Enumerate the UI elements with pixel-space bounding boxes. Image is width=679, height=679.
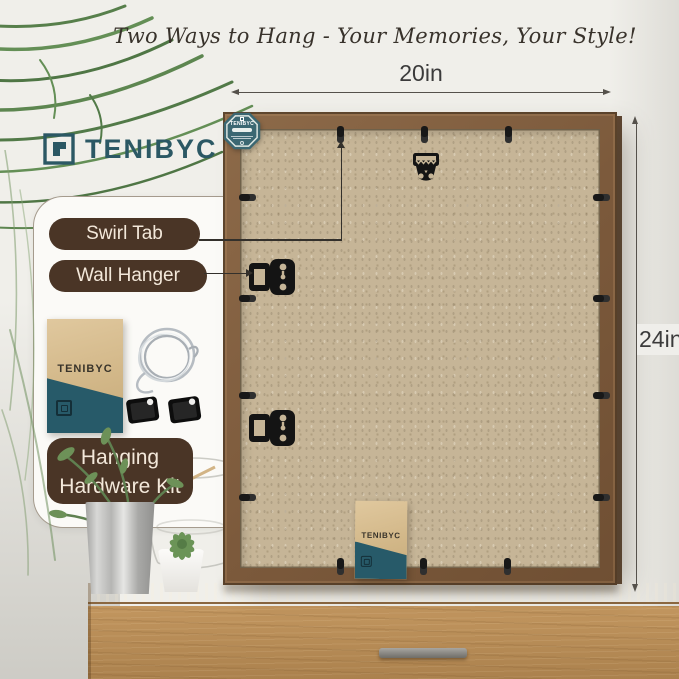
height-dimension-label: 24in (637, 324, 679, 355)
height-dimension-arrow-top (632, 116, 638, 124)
swirl-tab-icon (593, 494, 610, 501)
swirl-tab-callout-line-h (199, 239, 342, 241)
badge-microtext (233, 138, 251, 139)
frame-envelope-logo-icon (361, 555, 372, 566)
product-diagram: TENIBYC Two Ways to Hang - Your Memories… (0, 0, 679, 679)
swirl-tab-icon (421, 126, 428, 143)
octagon-badge: TENIBYC (223, 112, 261, 150)
frame-envelope: TENIBYC (355, 501, 408, 579)
wall-hanger-label-text: Wall Hanger (76, 265, 180, 287)
badge-brand-text: TENIBYC (223, 121, 261, 127)
picture-frame-back: TENIBYC TENIBYC (223, 112, 617, 585)
swirl-tab-label-text: Swirl Tab (86, 223, 163, 245)
succulent-icon (154, 522, 210, 560)
frame-backboard (240, 129, 600, 568)
wall-hanger-icon (248, 257, 296, 297)
brand-logo: TENIBYC (42, 130, 242, 168)
width-dimension-arrow-right (603, 89, 611, 95)
wall-hanger-callout-arrow (246, 269, 253, 277)
bucket-rim (82, 498, 158, 508)
swirl-tab-icon (239, 194, 256, 201)
swirl-tab-callout-arrow (337, 141, 345, 148)
width-dimension-arrow-left (231, 89, 239, 95)
page-title: Two Ways to Hang - Your Memories, Your S… (100, 24, 650, 48)
swirl-tab-icon (593, 295, 610, 302)
swirl-tab-icon (593, 194, 610, 201)
badge-bar (232, 128, 252, 132)
dresser-front (88, 606, 679, 679)
drawer-handle (379, 648, 467, 658)
width-dimension-line (237, 92, 606, 93)
hanger-pack-icons (125, 393, 207, 427)
frame-side-depth (617, 116, 622, 584)
wall-hanger-icon (248, 408, 296, 448)
dresser-left-edge (88, 583, 91, 679)
width-dimension-label: 20in (371, 60, 471, 87)
swirl-tab-icon (593, 392, 610, 399)
metal-bucket (84, 502, 156, 594)
badge-seal-icon (240, 141, 244, 145)
wall-hanger-callout-line (204, 273, 247, 275)
swirl-tab-icon (239, 392, 256, 399)
swirl-tab-icon (505, 126, 512, 143)
badge-microtext (231, 136, 253, 137)
swirl-tab-icon (239, 494, 256, 501)
swirl-tab-label: Swirl Tab (49, 218, 200, 250)
sawtooth-hanger-icon (412, 152, 440, 184)
swirl-tab-callout-line-v (341, 147, 343, 240)
swirl-tab-icon (504, 558, 511, 575)
dresser (88, 583, 679, 679)
swirl-tab-icon (420, 558, 427, 575)
frame-envelope-teal (355, 541, 407, 579)
wall-hanger-label: Wall Hanger (49, 260, 207, 292)
height-dimension-arrow-bottom (632, 584, 638, 592)
frame-envelope-brand: TENIBYC (355, 531, 407, 540)
brand-logo-text: TENIBYC (85, 134, 218, 165)
swirl-tab-icon (337, 558, 344, 575)
